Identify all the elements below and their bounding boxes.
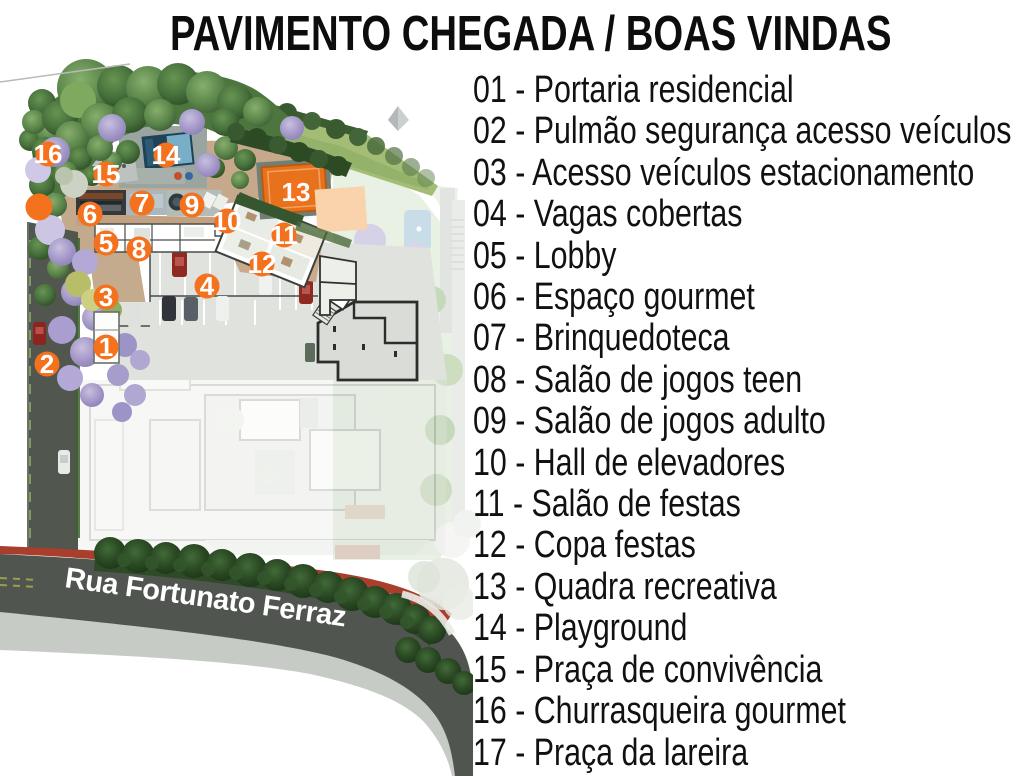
- svg-text:13: 13: [282, 177, 311, 207]
- svg-text:10: 10: [213, 206, 242, 236]
- svg-text:6: 6: [83, 199, 97, 229]
- svg-text:5: 5: [99, 228, 113, 258]
- svg-text:3: 3: [99, 282, 113, 312]
- svg-text:15: 15: [92, 159, 121, 189]
- svg-text:8: 8: [132, 234, 146, 264]
- svg-text:16: 16: [34, 139, 63, 169]
- svg-text:2: 2: [40, 349, 54, 379]
- svg-text:12: 12: [248, 249, 277, 279]
- svg-text:14: 14: [152, 140, 181, 170]
- svg-text:7: 7: [135, 188, 149, 218]
- svg-text:1: 1: [99, 332, 113, 362]
- svg-text:9: 9: [185, 190, 199, 220]
- svg-text:4: 4: [200, 271, 215, 301]
- svg-text:11: 11: [270, 220, 298, 250]
